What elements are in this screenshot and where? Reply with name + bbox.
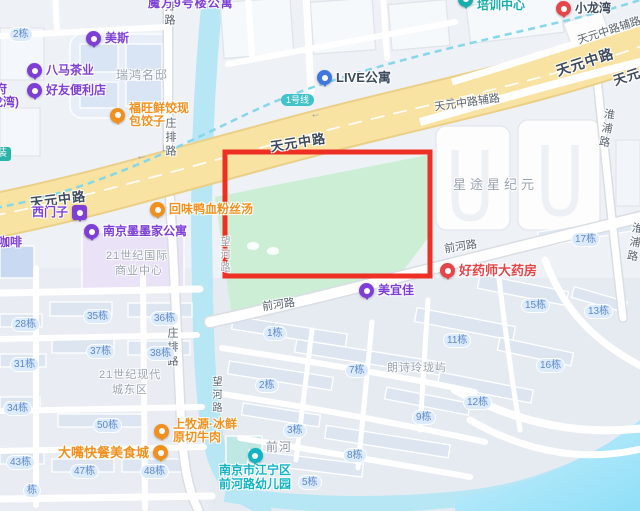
building-label: 3栋 [284,424,306,437]
road-label-wanghe-south: 望河路 [208,376,223,415]
area-label-mofang: 魔方9号楼公寓 [148,0,234,11]
building-label: 2栋 [10,28,32,41]
poi-training-center[interactable]: 盘安安全 培训中心 [458,0,525,12]
poi-bama-tea[interactable]: 八马茶业 [27,63,94,78]
apartment-pin-icon [317,70,332,85]
road-arrow-icon: ← [135,150,147,163]
kindergarten-pin-icon [248,448,263,463]
building-label: 43栋 [7,456,34,469]
area-label-century-east-2: 城东区 [112,381,148,397]
xiaolongwan-pin-icon [556,1,571,16]
poi-live-apartment[interactable]: LIVE公寓 [317,70,391,85]
building-label: 35栋 [84,310,111,323]
poi-siemens[interactable]: 西门子 [32,205,87,220]
building-label: 12栋 [464,396,491,409]
building-label: 13栋 [585,305,612,318]
poi-kindergarten[interactable]: 南京市江宁区 前河路幼儿园 [224,448,286,491]
building-label: 48栋 [141,465,168,478]
poi-momo-apartment[interactable]: 南京墨墨家公寓 [84,224,187,239]
area-label-longwan-partial: 龙湾) [0,96,19,109]
map-canvas[interactable]: 天元中路 天元中路 天元中路 天元中路 天元中路辅路 天元中路辅路 庄排路 庄排… [0,0,640,511]
restaurant-pin-icon [110,108,125,123]
hotel-pin-icon [84,224,99,239]
poi-label-coffee-partial: 好咖啡 [0,236,22,249]
training-center-pin-icon [458,0,473,7]
poi-meisi[interactable]: 美斯 [86,31,129,46]
road-label-wanghe-north: 望河路 [216,236,231,275]
road-arrow-icon: ← [309,107,322,120]
building-label: 9栋 [413,411,435,424]
building-label: 47栋 [71,465,98,478]
building-label: 37栋 [87,345,114,358]
building-label: 36栋 [151,312,178,325]
siemens-pin-icon [72,205,87,220]
poi-huiwei-noodles[interactable]: 回味鸭血粉丝汤 [150,202,253,217]
building-label: 17栋 [572,233,599,246]
poi-shangmuyuan-beef[interactable]: 上牧源·冰鲜 原切牛肉 [154,418,237,444]
pharmacy-pin-icon [440,263,455,278]
building-label: 28栋 [12,318,39,331]
area-label-xingtu: 星途星纪元 [453,174,538,193]
building-label: 2栋 [256,379,278,392]
poi-dazui-food-court[interactable]: 大嘴快餐美食城 [58,445,168,460]
metro-line1-badge: 1号线 [281,94,314,106]
area-label-langshi: 朗诗玲珑屿 [387,359,447,375]
poi-meiyijia[interactable]: 美宜佳 [359,283,414,298]
teashop-pin-icon [27,63,42,78]
building-label: 15栋 [522,299,549,312]
clothing-tag-partial: 装 [0,147,11,161]
building-label: 8栋 [344,449,366,462]
area-label-century-east-1: 21世纪现代 [99,366,161,382]
building-label: 5栋 [299,476,321,489]
road-arrow-icon: ↓ [161,142,167,154]
convenience-store-pin-icon [27,83,42,98]
poi-fuwang-dumplings[interactable]: 福旺鲜饺现 包饺子 [110,102,189,128]
area-label-ruihong: 瑞鸿名邸 [116,66,168,83]
building-label: 38栋 [147,347,174,360]
meisi-pin-icon [86,31,101,46]
building-label: 7栋 [346,364,368,377]
building-label: 34栋 [4,402,31,415]
building-label: 1栋 [264,327,286,340]
butcher-pin-icon [154,424,169,439]
road-arrow-icon: → [443,91,456,104]
building-label: 11栋 [444,334,470,347]
poi-pharmacy[interactable]: 好药师大药房 [440,263,537,278]
restaurant-pin-icon [153,445,168,460]
building-label: 栋 [24,484,40,497]
building-label: 50栋 [94,419,121,432]
area-label-century-intl-1: 21世纪国际 [106,247,168,263]
poi-xiaolongwan[interactable]: 小龙湾 [556,1,611,16]
poi-haoyou-store[interactable]: 好友便利店 [27,83,106,98]
restaurant-pin-icon [150,202,165,217]
convenience-store-pin-icon [359,283,374,298]
building-label: 31栋 [11,358,38,371]
area-label-century-intl-2: 商业中心 [115,262,163,278]
building-label: 16栋 [537,359,564,372]
